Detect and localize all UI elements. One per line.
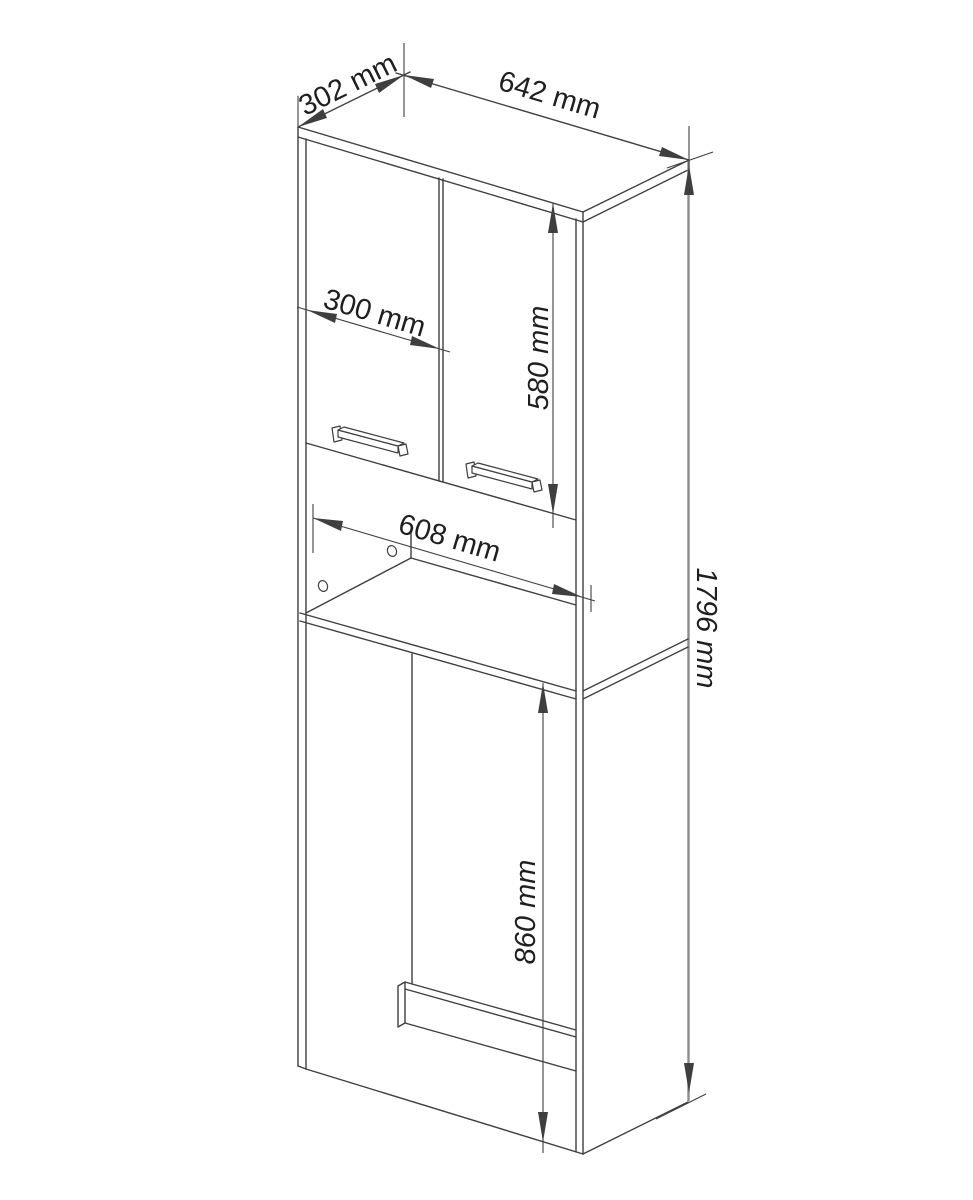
dim-label-door-height: 580 mm (523, 306, 555, 411)
shelf-pin-hole (386, 544, 398, 557)
plinth-left-end-cap (398, 982, 405, 1027)
dim-label-total-height: 1796 mm (690, 568, 722, 689)
dimension-depth: 302 mm (294, 43, 404, 127)
floor-line (306, 1069, 583, 1154)
shelf-left-depth-edge (306, 558, 411, 613)
door-handle-left (332, 426, 408, 456)
dim-arrow (313, 518, 343, 531)
dim-arrow (538, 1112, 548, 1142)
dim-arrow (548, 484, 558, 514)
shelf-front-bottom-edge (300, 621, 576, 699)
dim-label-width: 642 mm (495, 65, 605, 125)
drawing-canvas: 302 mm 642 mm 300 mm 580 mm 608 mm 1796 (0, 0, 973, 1200)
top-panel-front-thickness (298, 137, 583, 222)
dim-arrow (552, 584, 582, 597)
dim-arrow (404, 75, 434, 88)
side-mid-band-top (583, 639, 688, 691)
shelf-pin-hole (317, 579, 329, 592)
side-mid-band-bottom (583, 647, 688, 699)
dim-label-opening-height: 860 mm (510, 860, 542, 965)
ext-line (656, 1094, 706, 1119)
dimension-door-width: 300 mm (297, 283, 450, 352)
right-panel-bottom-edge (583, 1102, 688, 1154)
dim-label-door-width: 300 mm (320, 283, 430, 343)
dim-arrow (684, 1063, 694, 1093)
left-stile-bottom-edge (298, 1066, 306, 1069)
handle-right-foot (532, 480, 542, 492)
plinth-top-edge (405, 982, 576, 1030)
dim-arrow (659, 147, 689, 160)
dim-arrow (684, 165, 694, 195)
top-panel-side-thickness (583, 170, 688, 222)
cabinet-technical-drawing: 302 mm 642 mm 300 mm 580 mm 608 mm 1796 (0, 0, 973, 1200)
top-face-right-edge (583, 160, 689, 212)
dim-arrow (548, 203, 558, 233)
dim-label-niche-width: 608 mm (395, 508, 505, 568)
cabinet-structure (298, 72, 689, 1154)
shelf-front-top-edge (300, 613, 576, 691)
door-handle-right (466, 462, 542, 492)
dim-arrow (538, 683, 548, 713)
top-face-front-edge (298, 127, 583, 212)
dimension-opening-height: 860 mm (510, 683, 548, 1153)
